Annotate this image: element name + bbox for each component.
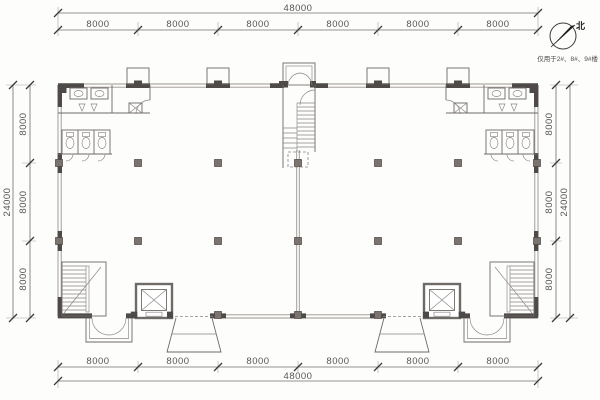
dim-bottom-seg: 8000: [246, 356, 269, 367]
dimension-left: 8000 8000 8000 24000: [2, 81, 36, 322]
dim-top-seg: 8000: [246, 19, 269, 30]
dim-top-seg: 8000: [406, 19, 429, 30]
wall-column: [375, 312, 382, 319]
column: [135, 238, 142, 245]
entrance-door-swings: [92, 318, 126, 335]
urinal: [79, 104, 85, 111]
stair-flight: [283, 103, 297, 152]
column: [215, 238, 222, 245]
exterior-walls: [58, 83, 539, 318]
service-core-left: [62, 262, 221, 352]
dim-left-seg: 8000: [18, 112, 29, 135]
restroom-right: [446, 85, 538, 161]
column: [295, 312, 302, 319]
dim-top-seg: 8000: [486, 19, 509, 30]
dim-bottom-seg: 8000: [86, 356, 109, 367]
wall-column: [56, 238, 63, 245]
column: [215, 160, 222, 167]
dim-bottom-seg: 8000: [326, 356, 349, 367]
dim-left-seg: 8000: [18, 267, 29, 290]
column: [455, 160, 462, 167]
dimension-top: 48000 8000 8000 8000 8000 8000 8000: [54, 3, 542, 36]
dim-right-seg: 8000: [544, 267, 555, 290]
column: [375, 160, 382, 167]
dim-left-seg: 8000: [18, 190, 29, 213]
dim-top-total: 48000: [284, 3, 313, 14]
sink: [70, 88, 87, 99]
column: [135, 160, 142, 167]
stair-rail: [86, 266, 89, 312]
wall-column: [534, 160, 541, 167]
toilet: [99, 133, 106, 137]
stair-treads: [297, 103, 315, 147]
stair-core-center: [279, 63, 316, 168]
floor-plan: [56, 63, 541, 352]
column: [295, 160, 302, 167]
column: [295, 238, 302, 245]
restroom-left: [58, 85, 150, 161]
dim-left-total: 24000: [2, 188, 13, 217]
entrance-steps: [167, 318, 221, 352]
dimension-right: 8000 8000 8000 24000: [544, 81, 578, 322]
toilet: [83, 133, 90, 137]
usage-note: 仅用于2#、8#、9#楼: [537, 54, 598, 63]
column: [375, 238, 382, 245]
dim-top-seg: 8000: [86, 19, 109, 30]
dim-bottom-seg: 8000: [166, 356, 189, 367]
column: [455, 238, 462, 245]
dim-bottom-seg: 8000: [486, 356, 509, 367]
dim-right-total: 24000: [559, 188, 570, 217]
dim-top-seg: 8000: [166, 19, 189, 30]
toilet-stalls: [62, 130, 110, 154]
dim-right-seg: 8000: [544, 112, 555, 135]
floor-plan-sheet: 48000 8000 8000 8000 8000 8000 8000 8000…: [0, 0, 600, 400]
dim-top-seg: 8000: [326, 19, 349, 30]
double-door-swing: [288, 73, 312, 85]
dim-bottom-total: 48000: [284, 371, 313, 382]
wall-column: [534, 238, 541, 245]
wall-column: [215, 312, 222, 319]
urinal: [91, 104, 97, 111]
wall-column: [56, 160, 63, 167]
sink: [91, 88, 108, 99]
stall-door-swings: [66, 154, 105, 161]
party-wall-center: [295, 150, 302, 319]
stair-treads: [62, 266, 86, 310]
north-arrow: 北: [550, 20, 585, 49]
door-swing: [136, 100, 150, 114]
toilet: [67, 133, 74, 137]
north-label: 北: [576, 20, 585, 31]
service-core-right: [375, 262, 534, 352]
dim-bottom-seg: 8000: [406, 356, 429, 367]
dim-right-seg: 8000: [544, 190, 555, 213]
dimension-bottom: 8000 8000 8000 8000 8000 8000 48000: [54, 356, 542, 388]
floor-plan-drawing: 48000 8000 8000 8000 8000 8000 8000 8000…: [0, 0, 600, 400]
